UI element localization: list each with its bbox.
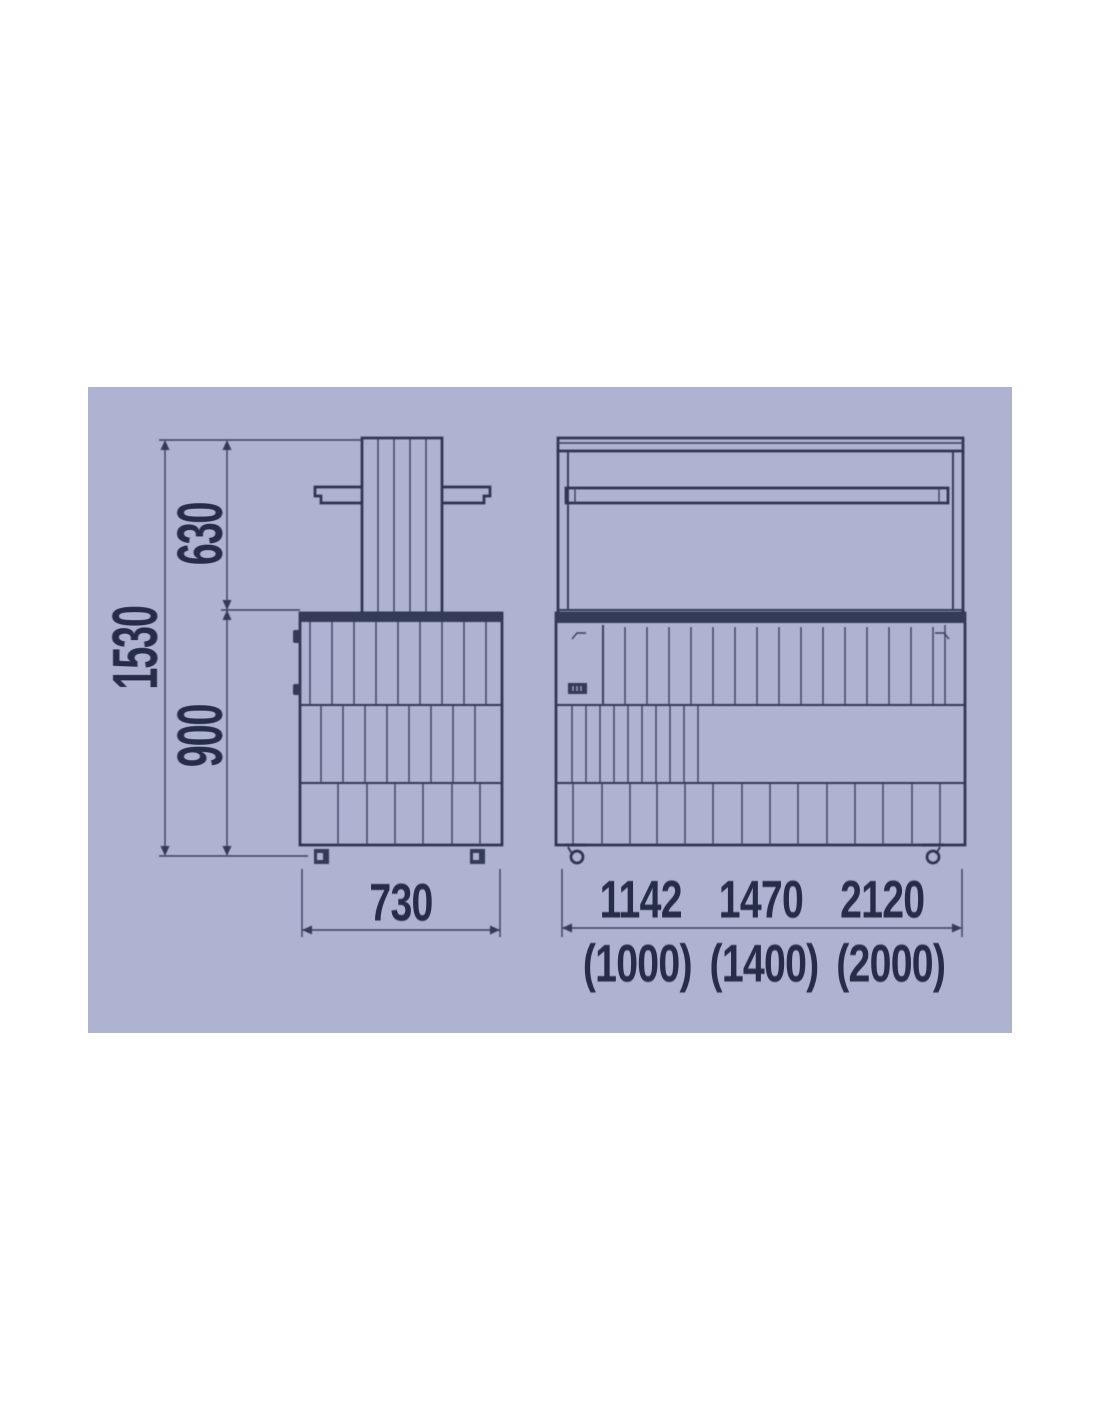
front-top-rail bbox=[558, 438, 963, 451]
dimension-width-alt-2: (1400) bbox=[710, 934, 819, 995]
front-slats-bottom bbox=[573, 783, 940, 845]
dimension-label-widths: 1142 1470 2120 bbox=[600, 870, 925, 931]
front-slats-top bbox=[603, 625, 945, 705]
front-body bbox=[556, 613, 965, 845]
dimension-width-alt-3: (2000) bbox=[836, 934, 945, 995]
side-caster-right bbox=[470, 849, 485, 864]
side-shelf-left bbox=[315, 487, 362, 503]
side-slats-top bbox=[310, 622, 486, 705]
page: { "page": { "background": "#ffffff" }, "… bbox=[0, 0, 1100, 1422]
dimension-width-3: 2120 bbox=[840, 870, 924, 931]
front-slats-middle bbox=[572, 705, 698, 783]
side-slats-bottom bbox=[338, 783, 480, 845]
dimension-width-2: 1470 bbox=[719, 870, 803, 931]
front-caster-right bbox=[922, 845, 944, 863]
side-hinge-bottom bbox=[293, 684, 301, 695]
dimension-label-overall-height: 1530 bbox=[98, 606, 172, 689]
front-shelf-bar bbox=[566, 488, 948, 503]
side-slats-middle bbox=[321, 705, 475, 783]
dimension-label-body-height: 900 bbox=[163, 705, 237, 767]
dimension-width-1: 1142 bbox=[600, 870, 682, 931]
side-body bbox=[300, 613, 502, 845]
front-door-mark-left bbox=[572, 633, 586, 639]
side-view bbox=[293, 438, 502, 864]
front-view bbox=[556, 438, 965, 863]
drawing-panel: 1530 630 900 730 1142 1470 2120 (1000) (… bbox=[88, 387, 1012, 1033]
dimension-width-alt-1: (1000) bbox=[583, 934, 692, 995]
dimension-label-widths-alt: (1000) (1400) (2000) bbox=[583, 934, 945, 995]
dimension-label-depth: 730 bbox=[369, 873, 432, 934]
dimension-lines bbox=[159, 440, 962, 937]
front-caster-left bbox=[565, 845, 587, 863]
side-hinge-top bbox=[293, 630, 301, 643]
side-shelf-right bbox=[442, 487, 490, 503]
front-door-mark-right bbox=[935, 633, 949, 639]
front-control-badge bbox=[568, 683, 587, 694]
dimension-label-upper-height: 630 bbox=[163, 503, 237, 565]
side-caster-left bbox=[314, 849, 329, 864]
side-tower bbox=[362, 438, 442, 613]
